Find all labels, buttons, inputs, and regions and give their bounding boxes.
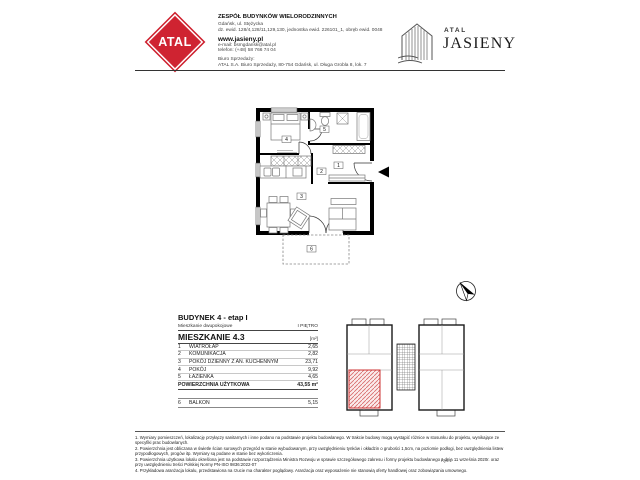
brand-atal-text: ATAL bbox=[444, 27, 467, 34]
room-label-2: 2 bbox=[320, 169, 323, 175]
kitchen-annex bbox=[260, 166, 306, 178]
room-label-5: 5 bbox=[323, 127, 326, 133]
entrance-arrow-icon bbox=[378, 167, 389, 178]
table-cell-name: ŁAZIENKA bbox=[189, 374, 308, 380]
table-cell-name: POKÓJ DZIENNY Z AN. KUCHENNYM bbox=[189, 359, 305, 365]
room-label-6: 6 bbox=[310, 247, 313, 253]
project-title: ZESPÓŁ BUDYNKÓW WIELORODZINNYCH bbox=[218, 14, 398, 20]
area-unit-header: [m²] bbox=[310, 337, 318, 342]
atal-diamond-logo: ATAL bbox=[148, 15, 202, 69]
highlighted-unit bbox=[349, 370, 380, 408]
drawing-number: Rys.1 bbox=[441, 458, 452, 463]
table-row: 4POKÓJ9,92 bbox=[178, 366, 318, 374]
balcony-area: 5,15 bbox=[308, 400, 318, 406]
table-row: 2KOMUNIKACJA2,82 bbox=[178, 351, 318, 359]
footnote: 1. Wymiary pomieszczeń, lokalizację przy… bbox=[135, 435, 505, 446]
total-area-row: POWIERZCHNIA UŻYTKOWA 43,55 m² bbox=[178, 381, 318, 390]
total-area-label: POWIERZCHNIA UŻYTKOWA bbox=[178, 382, 297, 388]
apartment-subtitle-row: Mieszkanie dwupokojowe I PIĘTRO bbox=[178, 322, 318, 331]
apartment-floor-plan: 1 2 3 4 5 6 bbox=[253, 103, 398, 268]
brand-jasieny-text: JASIENY bbox=[443, 35, 516, 53]
living-room-furniture bbox=[261, 197, 357, 234]
table-cell-no: 2 bbox=[178, 351, 189, 357]
balcony-row: 6 BALKON 5,15 bbox=[178, 398, 318, 408]
sales-office-address: ATAL S.A. Biuro Sprzedaży, 80-754 Gdańsk… bbox=[218, 63, 398, 69]
table-row: 3POKÓJ DZIENNY Z AN. KUCHENNYM23,71 bbox=[178, 359, 318, 367]
apartment-type: Mieszkanie dwupokojowe bbox=[178, 324, 232, 329]
table-cell-area: 2,65 bbox=[308, 344, 318, 350]
footnote: 2. Powierzchnia jest obliczana w świetle… bbox=[135, 446, 505, 457]
atal-logo-text: ATAL bbox=[148, 35, 202, 49]
header-divider bbox=[135, 70, 505, 71]
house-icon bbox=[398, 20, 436, 66]
table-cell-no: 3 bbox=[178, 359, 189, 365]
building-title: BUDYNEK 4 - etap I bbox=[178, 313, 318, 322]
balcony-number: 6 bbox=[178, 400, 189, 406]
north-arrow-icon bbox=[452, 277, 480, 305]
phone: telefon: (+48) 58 766 74 04 bbox=[218, 48, 398, 54]
table-cell-area: 9,92 bbox=[308, 367, 318, 373]
floor-label: I PIĘTRO bbox=[297, 324, 318, 329]
table-cell-no: 5 bbox=[178, 374, 189, 380]
room-label-4: 4 bbox=[285, 137, 288, 143]
stair-core bbox=[397, 344, 415, 390]
brochure-page: ATAL ZESPÓŁ BUDYNKÓW WIELORODZINNYCH Gda… bbox=[0, 0, 640, 480]
table-row: 1WIATROŁAP2,65 bbox=[178, 344, 318, 352]
total-area-value: 43,55 m² bbox=[297, 382, 318, 388]
plot-registry: dz. ewid. 128/4,128/11,129,130, jednostk… bbox=[218, 28, 398, 34]
table-cell-area: 2,82 bbox=[308, 351, 318, 357]
room-label-3: 3 bbox=[300, 194, 303, 200]
building-key-plan bbox=[342, 312, 482, 417]
footnotes-block: 1. Wymiary pomieszczeń, lokalizację przy… bbox=[135, 431, 505, 474]
wardrobe-strip bbox=[271, 151, 311, 167]
table-cell-name: KOMUNIKACJA bbox=[189, 351, 308, 357]
table-cell-no: 1 bbox=[178, 344, 189, 350]
table-cell-no: 4 bbox=[178, 367, 189, 373]
table-cell-name: WIATROŁAP bbox=[189, 344, 308, 350]
footnote: 4. Przykładowa aranżacja lokalu, przedst… bbox=[135, 468, 505, 474]
area-table: BUDYNEK 4 - etap I Mieszkanie dwupokojow… bbox=[178, 313, 318, 408]
table-cell-area: 4,65 bbox=[308, 374, 318, 380]
website: www.jasieny.pl bbox=[218, 36, 398, 43]
table-cell-area: 23,71 bbox=[305, 359, 318, 365]
apartment-number: MIESZKANIE 4.3 bbox=[178, 332, 245, 342]
room-label-1: 1 bbox=[337, 163, 340, 169]
header-info: ZESPÓŁ BUDYNKÓW WIELORODZINNYCH Gdańsk, … bbox=[218, 14, 398, 68]
table-row: 5ŁAZIENKA4,65 bbox=[178, 374, 318, 382]
bathroom-fixtures bbox=[310, 113, 370, 141]
apartment-title-row: MIESZKANIE 4.3 [m²] bbox=[178, 331, 318, 344]
room-rows: 1WIATROŁAP2,652KOMUNIKACJA2,823POKÓJ DZI… bbox=[178, 344, 318, 382]
balcony-label: BALKON bbox=[189, 400, 308, 406]
table-cell-name: POKÓJ bbox=[189, 367, 308, 373]
jasieny-brand-logo: ATAL JASIENY bbox=[398, 18, 508, 70]
